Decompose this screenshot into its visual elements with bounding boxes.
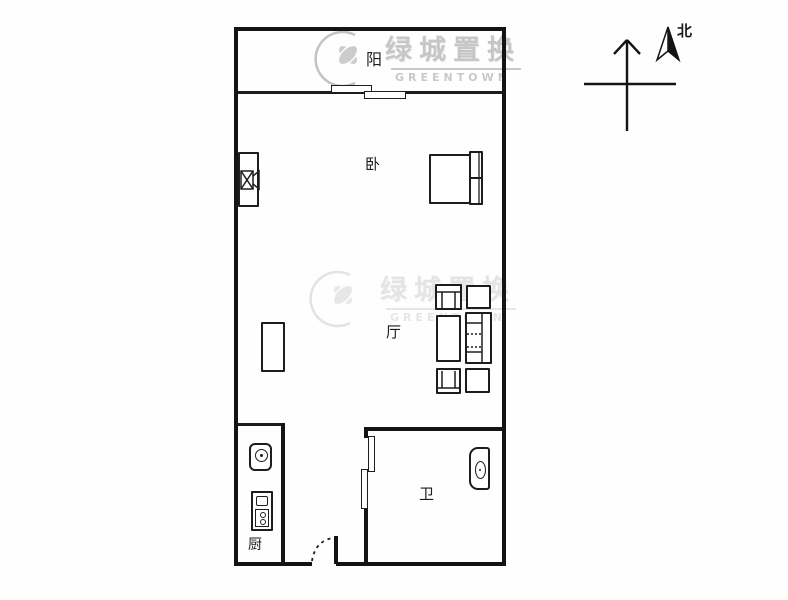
north-label: 北: [677, 24, 692, 39]
labels-layer: 阳 卧 厅 卫 厨 北: [0, 0, 788, 600]
room-label-bathroom: 卫: [419, 487, 434, 502]
room-label-bedroom: 卧: [365, 157, 380, 172]
room-label-kitchen: 厨: [248, 538, 262, 552]
room-label-balcony: 阳: [366, 52, 382, 68]
room-label-living: 厅: [386, 325, 401, 340]
floor-plan-canvas: 绿城置换 GREENTOWN 绿城置换 GREENTOWN: [0, 0, 788, 600]
